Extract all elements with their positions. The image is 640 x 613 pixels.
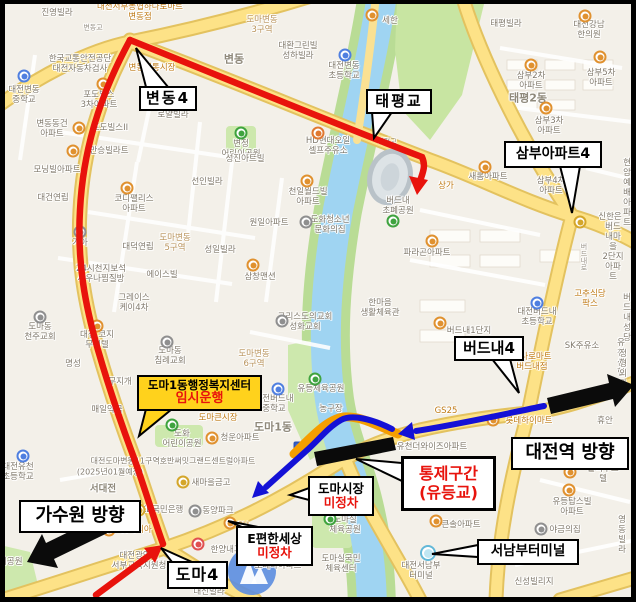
control-zone-line2: (유등교) xyxy=(419,484,478,502)
control-zone-line1: 통제구간 xyxy=(419,465,478,483)
callout-daejeon-label: 대전역 방향 xyxy=(525,443,614,464)
callout-sambu-label: 삼부아파트4 xyxy=(516,146,590,162)
route-red-east-arrowhead xyxy=(409,176,428,195)
frame-left xyxy=(0,0,5,602)
route-red-south xyxy=(79,40,163,544)
callout-sambu-apt4: 삼부아파트4 xyxy=(504,141,602,168)
route-blue-east xyxy=(416,406,544,431)
callout-doma4: 도마4 xyxy=(167,561,228,589)
callout-bendong4: 변동4 xyxy=(139,86,197,111)
callout-taepyeonggyo-label: 태평교 xyxy=(375,93,422,110)
temp-service-callout-tail xyxy=(139,409,172,436)
doma-market-line1: 도마시장 xyxy=(318,482,364,496)
callout-beodeunae4-label: 버드내4 xyxy=(463,340,515,357)
callout-beodeunae4: 버드내4 xyxy=(454,336,524,361)
callout-bendong4-label: 변동4 xyxy=(146,90,190,107)
frame-top xyxy=(0,0,636,4)
callout-gasuwon-label: 가수원 방향 xyxy=(35,506,124,527)
temp-service-line2: 임시운행 xyxy=(176,392,224,407)
callout-temp-service: 도마1동행정복지센터 임시운행 xyxy=(137,375,262,411)
callout-seonambu-label: 서남부터미널 xyxy=(491,544,566,560)
callout-daejeon-station-direction: 대전역 방향 xyxy=(511,437,629,470)
doma-market-line2: 미정차 xyxy=(324,496,359,510)
callout-doma-market-no-stop: 도마시장 미정차 xyxy=(308,476,374,516)
map-area: 진영빌라대전서부농협하나로마트 변동점도마변동 3구역대환그린빌 성하빌라변동세… xyxy=(0,0,636,597)
epyeonhansesang-line1: E편한세상 xyxy=(247,532,302,546)
frame-bottom xyxy=(0,597,636,602)
daejeon-direction-arrow-icon xyxy=(547,374,634,414)
callout-control-zone: 통제구간 (유등교) xyxy=(401,456,496,511)
route-red-southwest xyxy=(96,555,150,595)
callout-doma4-label: 도마4 xyxy=(176,566,220,584)
callout-seonambu-terminal: 서남부터미널 xyxy=(477,539,579,565)
map-canvas[interactable]: 진영빌라대전서부농협하나로마트 변동점도마변동 3구역대환그린빌 성하빌라변동세… xyxy=(0,0,640,613)
callout-epyeonhansesang-no-stop: E편한세상 미정차 xyxy=(236,526,313,566)
callout-taepyeonggyo: 태평교 xyxy=(366,89,432,114)
epyeonhansesang-line2: 미정차 xyxy=(257,546,292,560)
frame-right xyxy=(631,0,636,602)
callout-gasuwon-direction: 가수원 방향 xyxy=(19,500,141,533)
